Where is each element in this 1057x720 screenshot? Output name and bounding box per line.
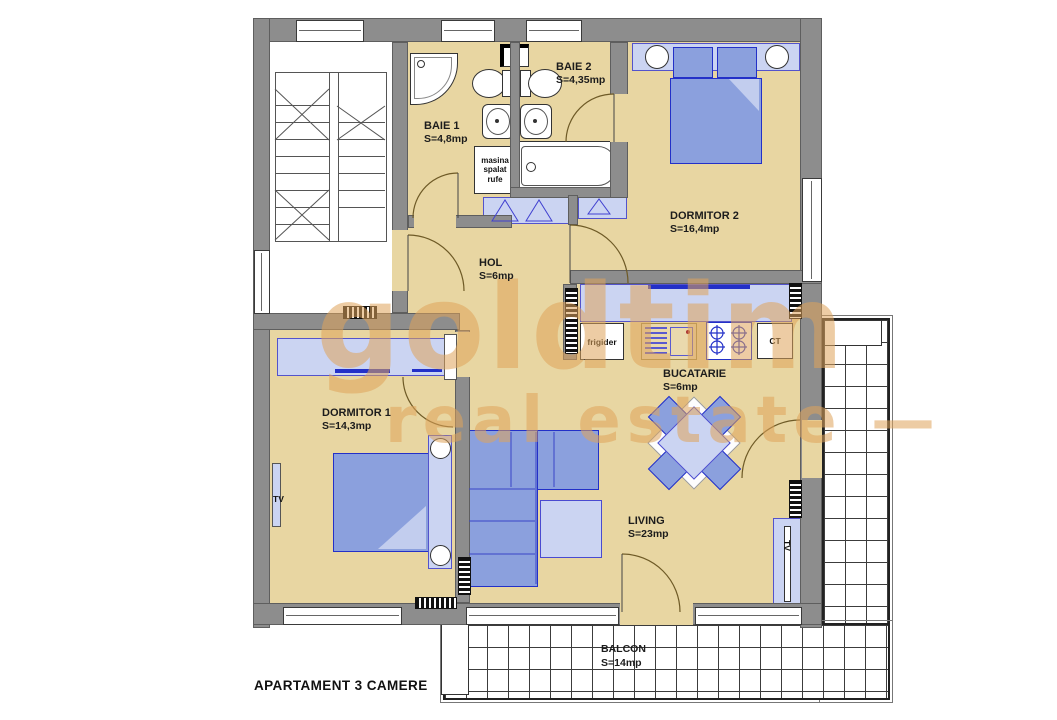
wall xyxy=(570,270,822,284)
floor-plan: frigider CT masina spalat rufe xyxy=(0,0,1057,720)
balcony-planter-box xyxy=(824,320,882,346)
hall-closet-2 xyxy=(578,197,627,219)
room-name: BAIE 2 xyxy=(556,60,605,74)
room-area: S=4,35mp xyxy=(556,74,605,88)
balcony-pillar xyxy=(441,623,469,695)
room-name: BAIE 1 xyxy=(424,119,467,133)
room-label-dormitor1: DORMITOR 1 S=14,3mp xyxy=(322,406,391,434)
boiler: CT xyxy=(757,323,793,359)
stair-divider xyxy=(329,72,339,242)
entry-door-opening xyxy=(392,230,408,291)
room-label-baie2: BAIE 2 S=4,35mp xyxy=(556,60,605,88)
room-area: S=14,3mp xyxy=(322,420,391,434)
stair-flight-left xyxy=(275,89,329,240)
fridge: frigider xyxy=(580,323,624,360)
window xyxy=(466,607,619,625)
sink-tap xyxy=(686,330,690,334)
room-label-hol: HOL S=6mp xyxy=(479,256,514,284)
room-name: DORMITOR 2 xyxy=(670,209,739,223)
radiator xyxy=(343,306,377,319)
radiator xyxy=(458,557,471,595)
room-area: S=23mp xyxy=(628,528,669,542)
room-name: HOL xyxy=(479,256,514,270)
tv-label-living: TV xyxy=(782,540,792,551)
room-label-balcon: BALCON S=14mp xyxy=(601,643,646,670)
room-label-dormitor2: DORMITOR 2 S=16,4mp xyxy=(670,209,739,237)
stove xyxy=(706,322,752,360)
balcony-door-opening xyxy=(802,420,822,478)
radiator xyxy=(789,480,802,518)
radiator xyxy=(565,288,578,354)
kitchen-counter xyxy=(580,284,792,322)
window xyxy=(283,607,402,625)
shower-drain xyxy=(417,60,425,68)
room-area: S=16,4mp xyxy=(670,223,739,237)
window xyxy=(254,250,270,314)
nightstand xyxy=(430,438,451,459)
dish-rack xyxy=(645,327,667,354)
room-name: LIVING xyxy=(628,514,669,528)
wardrobe-accent xyxy=(335,369,390,373)
toilet-baie1 xyxy=(472,69,506,98)
room-label-baie1: BAIE 1 S=4,8mp xyxy=(424,119,467,147)
door-opening xyxy=(610,94,628,142)
wall xyxy=(510,42,520,190)
door-leaf xyxy=(444,334,457,380)
sofa-vertical xyxy=(468,430,538,587)
wardrobe-accent xyxy=(412,369,442,372)
room-name: BUCATARIE xyxy=(663,367,726,381)
page-title: APARTAMENT 3 CAMERE xyxy=(254,678,428,693)
radiator xyxy=(415,597,457,609)
room-area: S=6mp xyxy=(479,270,514,284)
stair-flight-right xyxy=(337,106,385,223)
room-name: DORMITOR 1 xyxy=(322,406,391,420)
room-label-bucatarie: BUCATARIE S=6mp xyxy=(663,367,726,395)
window xyxy=(695,607,802,625)
coffee-table xyxy=(540,500,602,558)
window xyxy=(441,20,495,42)
boiler-label: CT xyxy=(769,336,780,346)
window xyxy=(802,178,822,282)
bathtub-drain xyxy=(526,162,536,172)
radiator xyxy=(789,283,802,319)
nightstand xyxy=(645,45,669,69)
room-area: S=14mp xyxy=(601,657,646,671)
room-area: S=6mp xyxy=(663,381,726,395)
window xyxy=(296,20,364,42)
pillow xyxy=(673,47,713,78)
nightstand xyxy=(765,45,789,69)
washing-machine-label: masina spalat rufe xyxy=(475,156,515,184)
pillow xyxy=(717,47,757,78)
sink-tap xyxy=(533,119,537,123)
door-opening xyxy=(455,332,470,377)
window xyxy=(526,20,582,42)
tv-living xyxy=(784,526,791,602)
sink-tap xyxy=(495,119,499,123)
room-area: S=4,8mp xyxy=(424,133,467,147)
balcony-bottom xyxy=(443,623,890,700)
door-opening xyxy=(414,215,456,228)
wall xyxy=(568,195,578,225)
room-label-living: LIVING S=23mp xyxy=(628,514,669,542)
counter-accent xyxy=(648,285,750,289)
balcony-door-opening xyxy=(620,603,693,625)
wall xyxy=(800,18,822,628)
room-name: BALCON xyxy=(601,643,646,657)
fridge-label: frigider xyxy=(587,337,616,347)
tv-label-dormitor1: TV xyxy=(273,494,284,504)
nightstand xyxy=(430,545,451,566)
